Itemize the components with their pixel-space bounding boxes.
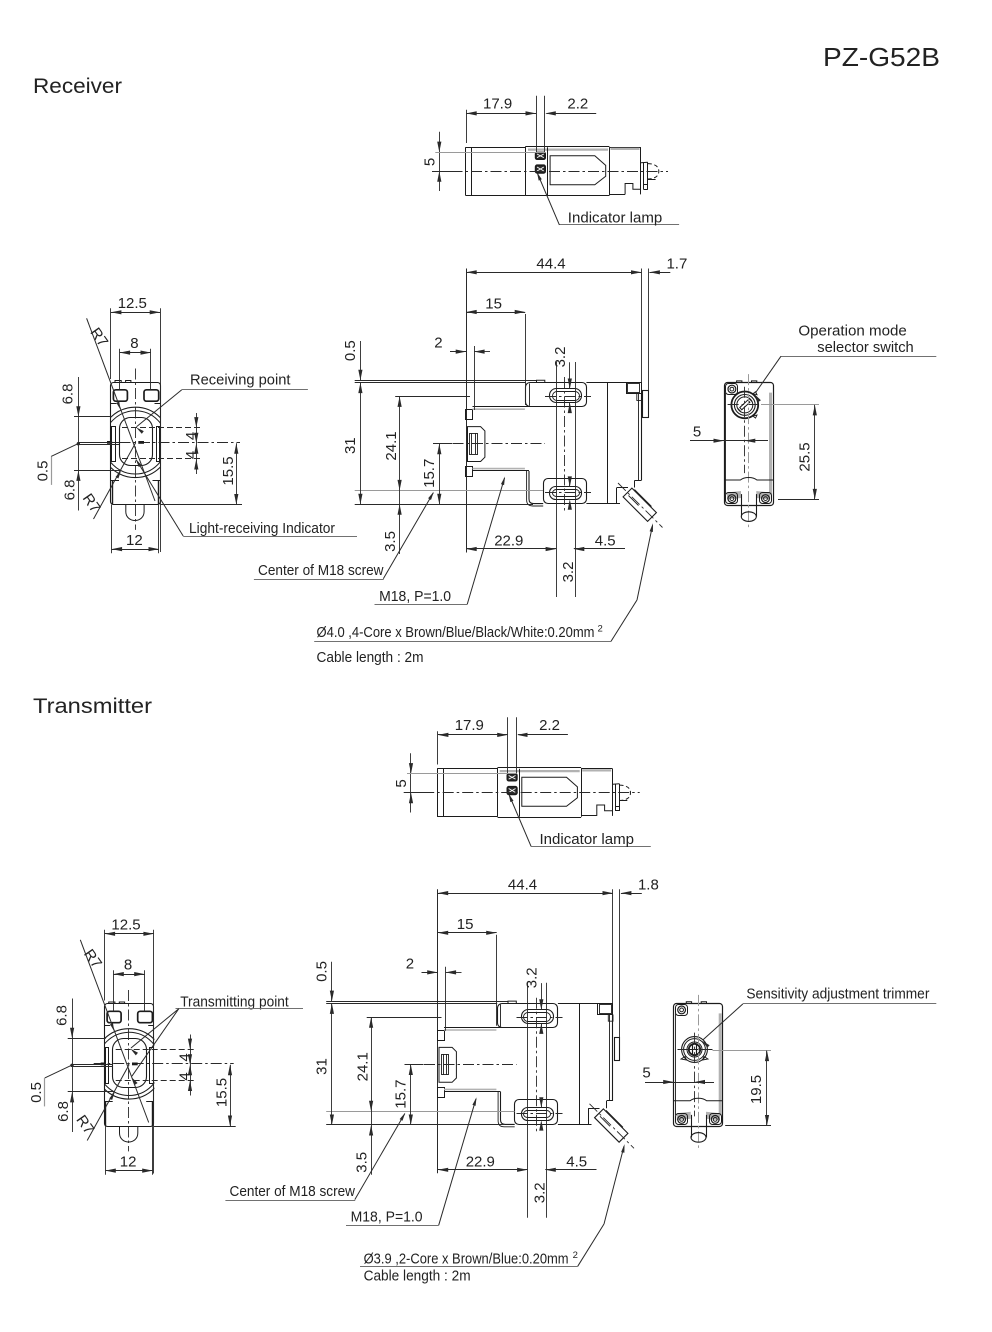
svg-text:4: 4 — [183, 451, 200, 459]
svg-text:4: 4 — [177, 1053, 194, 1061]
svg-text:12.5: 12.5 — [118, 295, 147, 312]
svg-text:PZ-G52B: PZ-G52B — [823, 42, 940, 72]
svg-text:Indicator lamp: Indicator lamp — [568, 209, 663, 226]
svg-text:6.8: 6.8 — [55, 1101, 72, 1122]
svg-text:15: 15 — [485, 295, 502, 312]
svg-text:31: 31 — [342, 437, 359, 454]
svg-text:15.5: 15.5 — [220, 456, 237, 485]
svg-text:1.7: 1.7 — [666, 256, 687, 273]
svg-text:Cable length : 2m: Cable length : 2m — [364, 1268, 471, 1285]
svg-text:2.2: 2.2 — [567, 96, 588, 113]
svg-text:2.2: 2.2 — [539, 717, 560, 734]
svg-text:12: 12 — [126, 532, 143, 549]
svg-text:24.1: 24.1 — [383, 431, 400, 460]
svg-text:19.5: 19.5 — [748, 1075, 765, 1104]
svg-text:0.5: 0.5 — [34, 461, 51, 482]
svg-text:4: 4 — [183, 432, 200, 440]
svg-text:31: 31 — [314, 1058, 331, 1075]
svg-text:Transmitting point: Transmitting point — [180, 993, 289, 1010]
svg-text:Ø3.9 ,2-Core x Brown/Blue:0.20: Ø3.9 ,2-Core x Brown/Blue:0.20mm — [364, 1251, 569, 1268]
svg-text:6.8: 6.8 — [61, 480, 78, 501]
svg-text:3.5: 3.5 — [382, 531, 399, 552]
svg-text:M18, P=1.0: M18, P=1.0 — [351, 1209, 423, 1226]
svg-text:12: 12 — [120, 1154, 137, 1171]
svg-text:0.5: 0.5 — [342, 340, 359, 361]
svg-text:22.9: 22.9 — [466, 1153, 495, 1170]
svg-text:4.5: 4.5 — [595, 533, 616, 550]
svg-text:2: 2 — [598, 624, 603, 635]
svg-text:selector switch: selector switch — [817, 339, 914, 356]
svg-text:44.4: 44.4 — [536, 256, 565, 273]
svg-text:Cable length : 2m: Cable length : 2m — [317, 649, 424, 666]
svg-text:8: 8 — [124, 957, 132, 974]
svg-text:5: 5 — [421, 158, 438, 166]
svg-text:Center of M18 screw: Center of M18 screw — [258, 562, 384, 579]
svg-text:3.2: 3.2 — [552, 347, 569, 368]
svg-text:17.9: 17.9 — [455, 717, 484, 734]
svg-text:3.2: 3.2 — [531, 1182, 548, 1203]
svg-text:4: 4 — [177, 1072, 194, 1080]
svg-text:2: 2 — [406, 956, 414, 973]
svg-text:3.2: 3.2 — [524, 967, 541, 988]
svg-text:Operation mode: Operation mode — [798, 323, 907, 340]
svg-text:1.8: 1.8 — [638, 876, 659, 893]
svg-text:2: 2 — [434, 335, 442, 352]
svg-text:0.5: 0.5 — [314, 961, 331, 982]
svg-text:R7: R7 — [73, 1112, 98, 1137]
svg-text:Transmitter: Transmitter — [33, 695, 152, 718]
svg-text:3.2: 3.2 — [560, 562, 577, 583]
svg-text:17.9: 17.9 — [483, 96, 512, 113]
svg-text:24.1: 24.1 — [354, 1052, 371, 1081]
svg-text:Center of M18 screw: Center of M18 screw — [230, 1183, 356, 1200]
svg-text:8: 8 — [130, 335, 138, 352]
svg-text:Light-receiving Indicator: Light-receiving Indicator — [189, 520, 335, 537]
svg-text:5: 5 — [693, 424, 701, 441]
svg-text:Receiving point: Receiving point — [190, 372, 291, 389]
svg-text:Ø4.0 ,4-Core x Brown/Blue/Blac: Ø4.0 ,4-Core x Brown/Blue/Black/White:0.… — [317, 624, 595, 641]
svg-text:5: 5 — [642, 1065, 650, 1082]
svg-text:25.5: 25.5 — [796, 442, 813, 471]
svg-text:22.9: 22.9 — [494, 533, 523, 550]
svg-text:Sensitivity adjustment trimmer: Sensitivity adjustment trimmer — [746, 986, 929, 1003]
svg-text:15: 15 — [457, 916, 474, 933]
svg-text:4.5: 4.5 — [566, 1153, 587, 1170]
svg-text:15.7: 15.7 — [421, 459, 438, 488]
svg-text:R7: R7 — [79, 490, 104, 515]
svg-text:44.4: 44.4 — [508, 876, 537, 893]
svg-text:6.8: 6.8 — [53, 1005, 70, 1026]
svg-text:0.5: 0.5 — [28, 1082, 45, 1103]
svg-text:15.5: 15.5 — [214, 1078, 231, 1107]
svg-text:6.8: 6.8 — [60, 384, 77, 405]
svg-text:5: 5 — [393, 779, 410, 787]
svg-text:Indicator lamp: Indicator lamp — [540, 831, 635, 848]
svg-text:12.5: 12.5 — [111, 917, 140, 934]
svg-text:3.5: 3.5 — [353, 1152, 370, 1173]
svg-text:M18, P=1.0: M18, P=1.0 — [379, 588, 451, 605]
svg-text:Receiver: Receiver — [33, 75, 122, 98]
svg-text:15.7: 15.7 — [393, 1079, 410, 1108]
svg-text:2: 2 — [573, 1250, 578, 1261]
